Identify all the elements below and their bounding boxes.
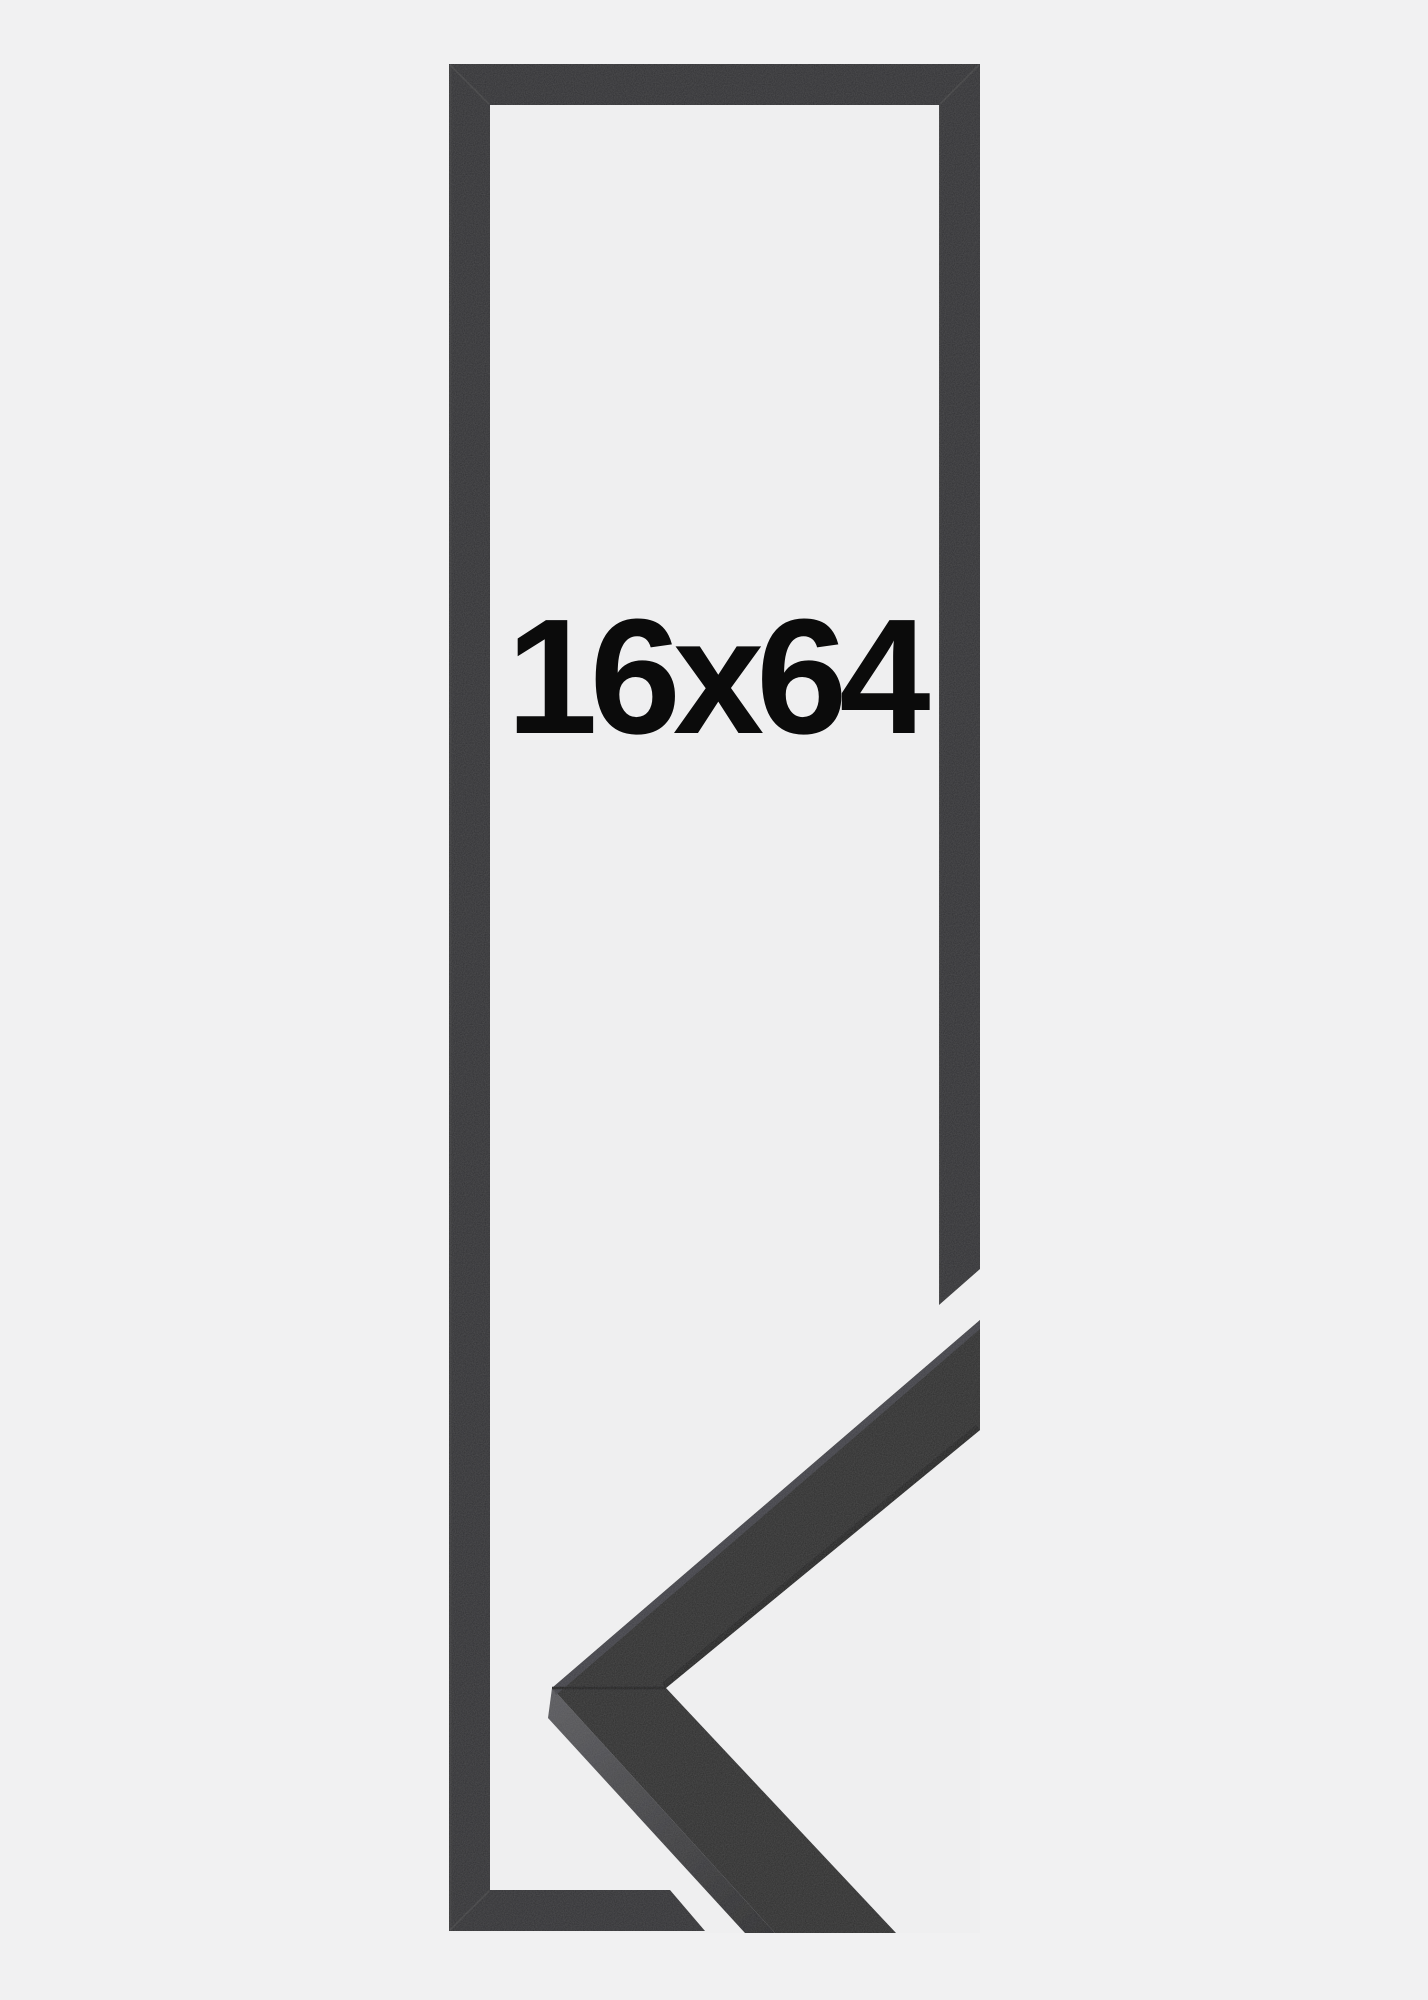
frame-photo — [0, 0, 1428, 2000]
product-image: 16x64 — [0, 0, 1428, 2000]
photo-background — [449, 64, 980, 1933]
size-label: 16x64 — [490, 595, 939, 759]
